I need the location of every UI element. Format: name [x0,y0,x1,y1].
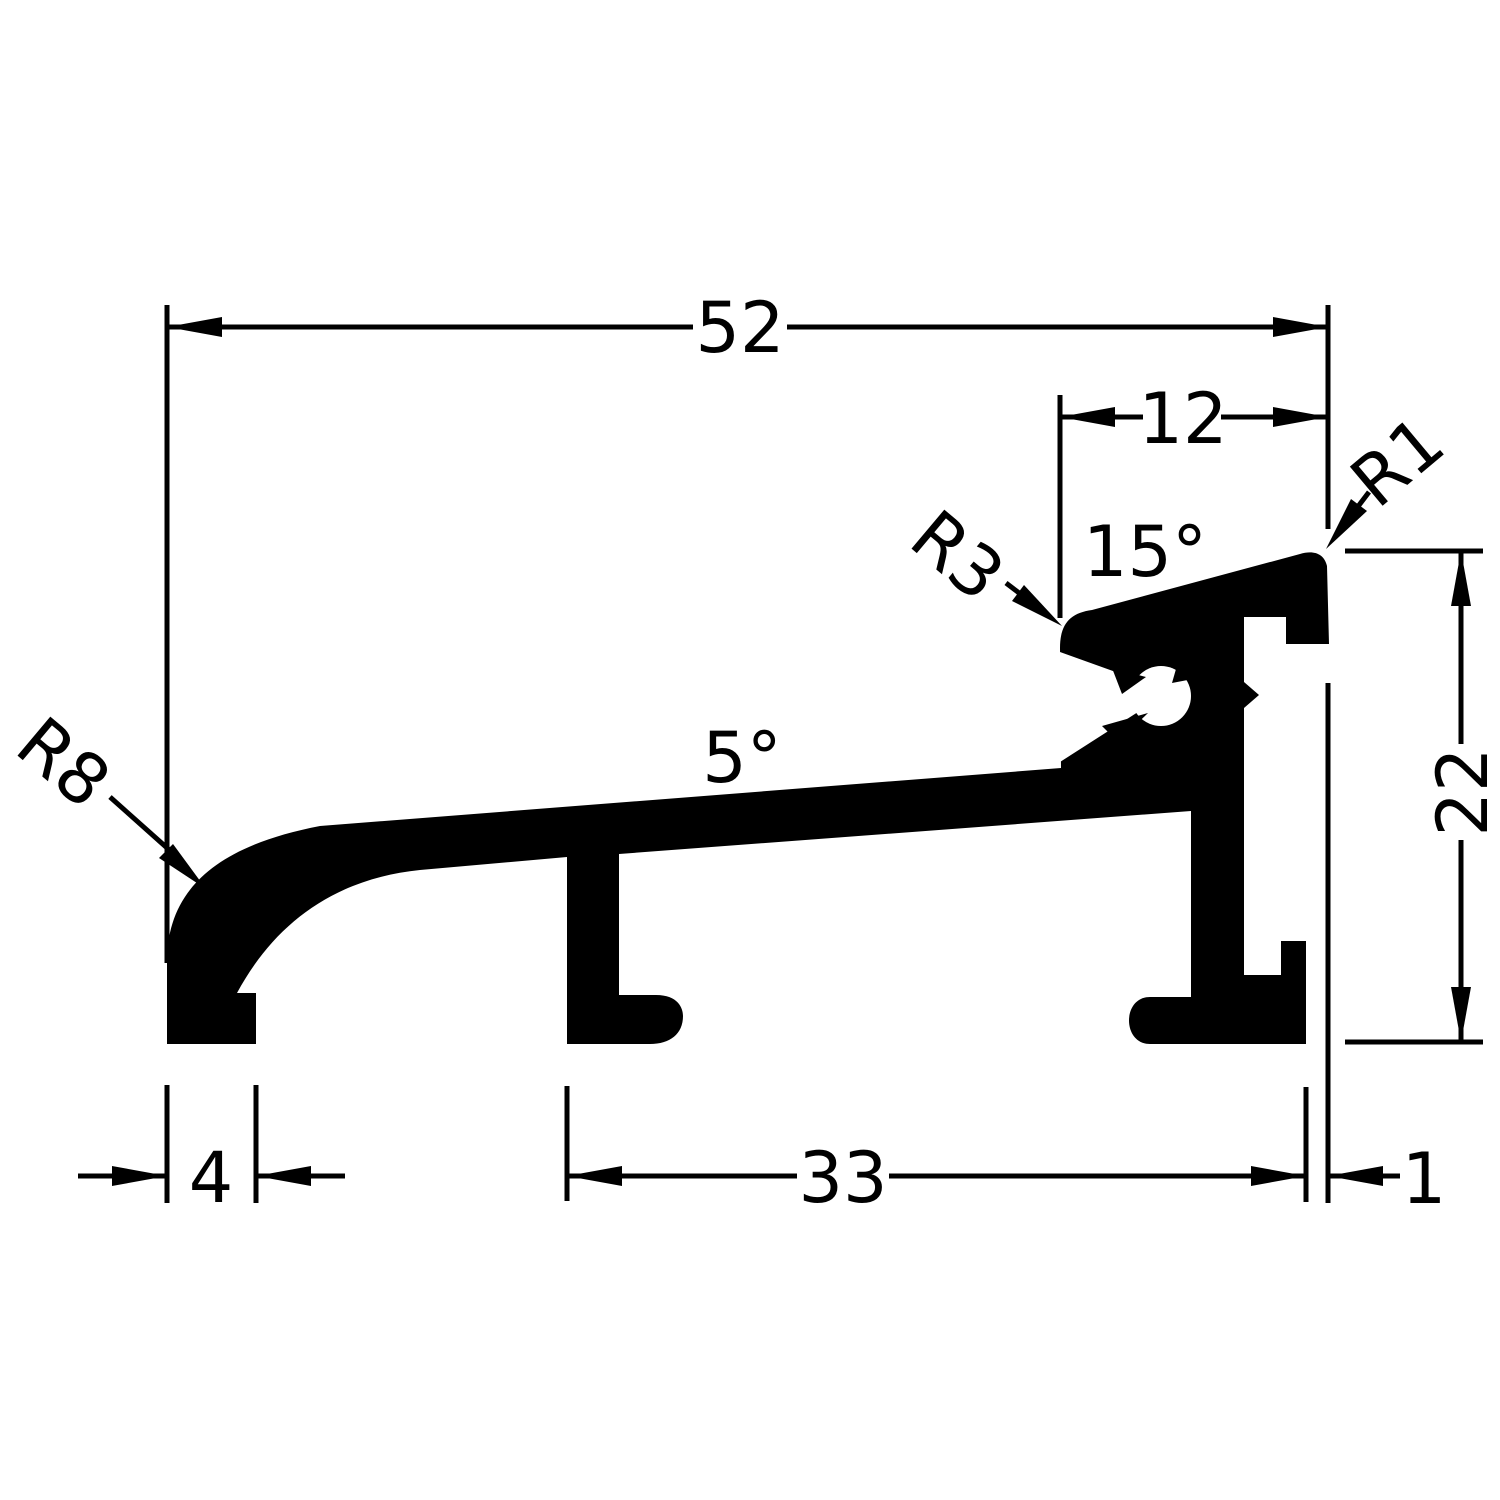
profile-technical-drawing: 52 12 22 4 [0,0,1500,1500]
arrowhead-up [1451,551,1471,606]
angle-slope-label: 5° [702,717,782,799]
dimension-middle-span: 33 [567,1137,1306,1219]
arrowhead-right [1251,1166,1306,1186]
arrowhead-right [1273,407,1328,427]
dimension-foot-width-value: 4 [189,1137,234,1219]
dimension-total-width-value: 52 [695,287,784,369]
channel-retention-nub [1244,682,1259,708]
dimension-total-width: 52 [167,287,1328,369]
dimension-head-width: 12 [1060,378,1328,460]
arrowhead-left [1328,1166,1383,1186]
arrowhead-left [167,317,222,337]
arrowhead-right [1273,317,1328,337]
leader-arrowhead [1326,499,1367,549]
dimension-head-width-value: 12 [1138,378,1227,460]
leader-arrowhead [1012,585,1062,626]
radius-callout-tip: R1 [1326,400,1460,549]
dimension-height: 22 [1422,551,1500,1042]
radius-head-label: R3 [895,494,1019,617]
arrowhead-left [567,1166,622,1186]
dimension-foot-width: 4 [78,1137,345,1219]
dimension-height-value: 22 [1422,747,1500,836]
arrowhead-down [1451,987,1471,1042]
drawing-canvas: 52 12 22 4 [0,0,1500,1500]
angle-head-label: 15° [1083,511,1207,593]
radius-callout-head: R3 [895,494,1062,626]
dimension-edge-offset-value: 1 [1402,1138,1447,1220]
radius-nose-label: R8 [1,701,125,824]
dimension-middle-span-value: 33 [798,1137,887,1219]
arrowhead-right [112,1166,167,1186]
arrowhead-left [1060,407,1115,427]
extension-lines [167,305,1483,1203]
arrowhead-left [256,1166,311,1186]
dimension-edge-offset: 1 [1328,1138,1446,1220]
radius-callout-nose: R8 [1,701,206,889]
